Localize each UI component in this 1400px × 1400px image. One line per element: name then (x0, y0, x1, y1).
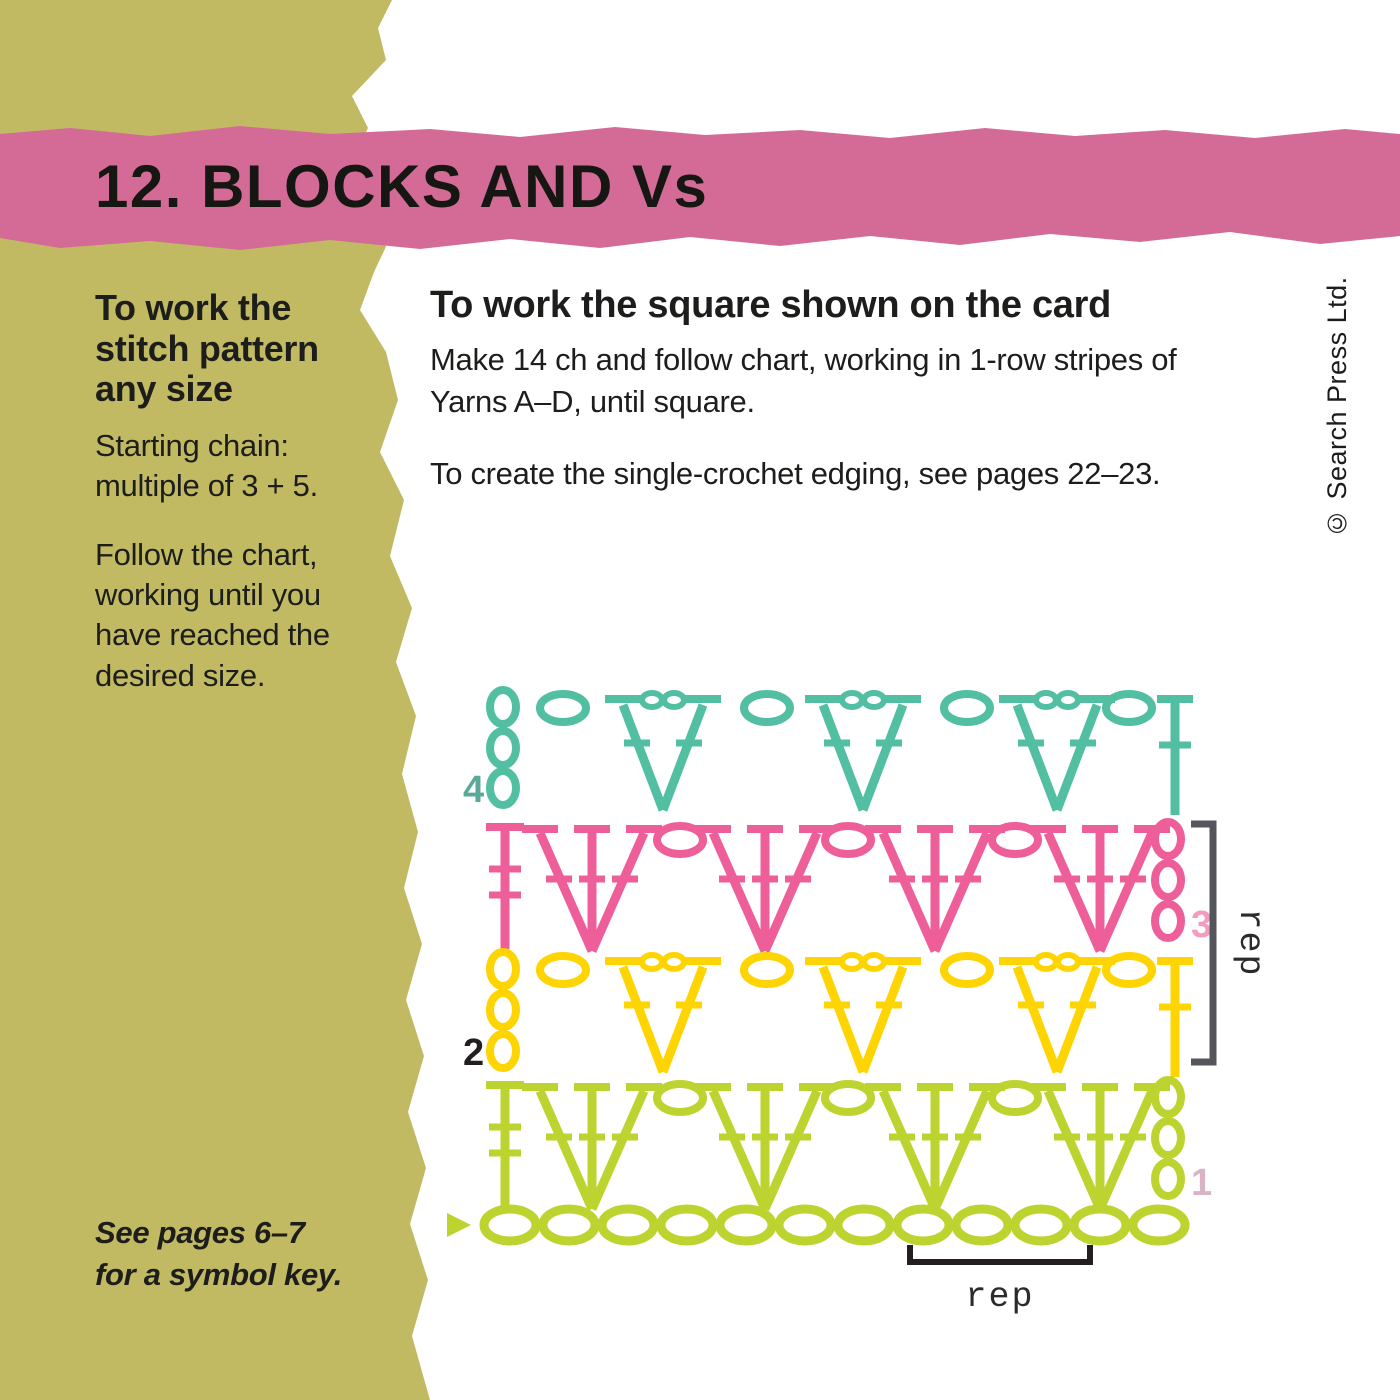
row-number-3: 3 (1191, 904, 1212, 946)
page-title: 12. BLOCKS AND Vs (0, 124, 1400, 250)
title-banner: 12. BLOCKS AND Vs (0, 124, 1400, 252)
side-rep-label: rep (1230, 908, 1270, 977)
row-number-1: 1 (1191, 1162, 1212, 1204)
symbol-key-footnote: See pages 6–7 for a symbol key. (95, 1212, 347, 1296)
row-number-4: 4 (463, 769, 484, 811)
chart-row-4 (490, 690, 1193, 815)
main-paragraph-make-chain: Make 14 ch and follow chart, working in … (430, 339, 1192, 423)
sidebar-instructions: To work the stitch pattern any size Star… (95, 288, 363, 724)
main-paragraph-edging: To create the single-crochet edging, see… (430, 453, 1192, 495)
chart-row-2 (490, 952, 1193, 1077)
row-number-2: 2 (463, 1032, 484, 1074)
bottom-rep-bracket (910, 1245, 1090, 1262)
sidebar-heading: To work the stitch pattern any size (95, 288, 363, 410)
main-instructions: To work the square shown on the card Mak… (430, 284, 1192, 525)
start-marker-triangle (447, 1213, 471, 1237)
chart-row-1 (486, 1080, 1181, 1209)
bottom-rep-label: rep (965, 1277, 1034, 1317)
crochet-chart: 4 3 2 1 (435, 662, 1275, 1336)
sidebar-paragraph-starting-chain: Starting chain: multiple of 3 + 5. (95, 426, 363, 507)
chart-row-3 (486, 822, 1181, 951)
sidebar-paragraph-follow-chart: Follow the chart, working until you have… (95, 535, 363, 696)
foundation-chain-row (447, 1209, 1185, 1241)
copyright-notice: © Search Press Ltd. (1322, 268, 1353, 538)
crochet-chart-svg: 4 3 2 1 (435, 662, 1275, 1336)
main-heading: To work the square shown on the card (430, 284, 1192, 327)
